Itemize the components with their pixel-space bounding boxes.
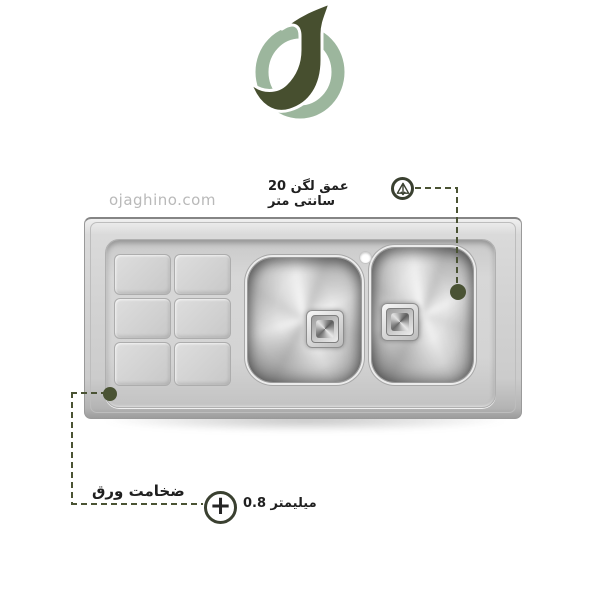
depth-anchor-dot <box>450 284 466 300</box>
drainboard-square <box>114 298 171 339</box>
drainboard-square <box>114 342 171 386</box>
right-drain-inner <box>386 308 414 336</box>
right-drain-core <box>391 313 409 331</box>
thickness-value-label: میلیمتر 0.8 <box>243 496 317 511</box>
left-bowl <box>247 257 362 383</box>
depth-connector-horizontal <box>415 187 458 189</box>
plus-glyph: + <box>210 493 232 519</box>
faucet-hole <box>359 251 372 264</box>
drainboard-square <box>174 298 231 339</box>
drainboard-square <box>174 342 231 386</box>
left-drain-core <box>316 320 334 338</box>
j-monogram-icon <box>248 2 352 120</box>
left-drain <box>306 310 344 348</box>
brand-logo <box>248 2 352 120</box>
right-drain <box>381 303 419 341</box>
watermark-text: ojaghino.com <box>109 191 216 209</box>
depth-connector-vertical <box>456 187 458 286</box>
drainboard-grid <box>114 254 231 386</box>
plus-icon: + <box>204 491 237 524</box>
left-drain-inner <box>311 315 339 343</box>
drainboard-square <box>174 254 231 295</box>
thickness-connector-vertical <box>71 392 73 505</box>
drainboard-square <box>114 254 171 295</box>
right-bowl <box>371 247 474 383</box>
thickness-connector-bottom <box>71 503 203 505</box>
depth-triangle-arrow-icon <box>396 182 410 196</box>
sink-deck <box>105 239 496 408</box>
depth-gauge-icon <box>391 177 414 200</box>
thickness-connector-top <box>71 392 105 394</box>
product-image-canvas: ojaghino.com <box>0 0 600 600</box>
thickness-annotation-label: ضخامت ورق <box>92 482 185 500</box>
depth-annotation-label: عمق لگن 20 سانتی متر <box>268 179 388 209</box>
thickness-anchor-dot <box>103 387 117 401</box>
